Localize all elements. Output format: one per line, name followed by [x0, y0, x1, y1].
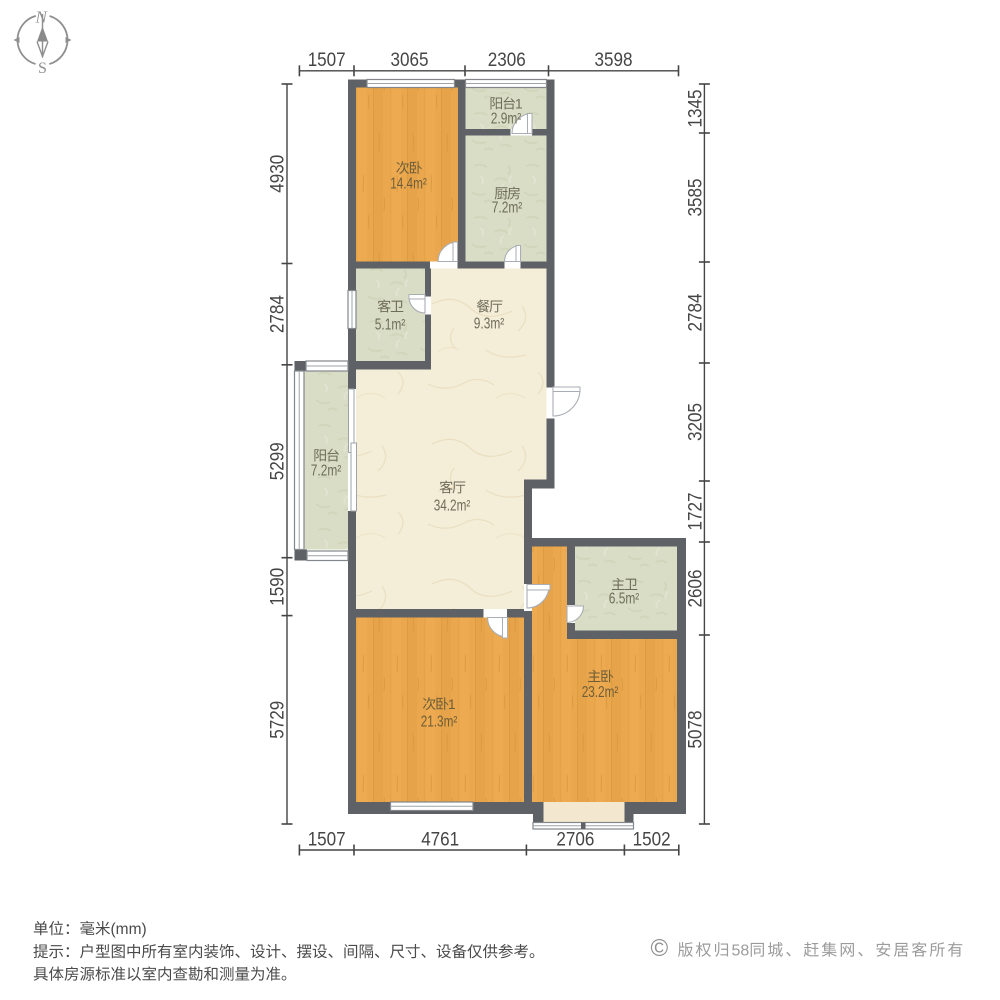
svg-text:1: 1 [515, 95, 523, 111]
svg-text:N: N [35, 8, 49, 27]
svg-text:1: 1 [448, 696, 456, 712]
svg-text:7.2m²: 7.2m² [492, 200, 523, 217]
svg-text:3205: 3205 [686, 403, 707, 441]
svg-text:2.9m²: 2.9m² [491, 111, 522, 128]
svg-text:1345: 1345 [686, 90, 707, 128]
svg-text:S: S [38, 60, 47, 77]
svg-text:4761: 4761 [421, 830, 459, 851]
svg-text:1590: 1590 [268, 568, 289, 606]
svg-text:58: 58 [732, 943, 750, 960]
svg-text:3585: 3585 [686, 179, 707, 217]
svg-text:21.3m²: 21.3m² [421, 714, 458, 731]
svg-text:23.2m²: 23.2m² [582, 684, 619, 701]
svg-text:7.2m²: 7.2m² [311, 463, 342, 480]
svg-text:5729: 5729 [268, 701, 289, 739]
svg-text:5.1m²: 5.1m² [375, 317, 406, 334]
svg-text:2784: 2784 [686, 293, 707, 331]
svg-text:14.4m²: 14.4m² [390, 176, 427, 193]
svg-text:1507: 1507 [308, 50, 346, 71]
svg-text:(mm): (mm) [111, 921, 147, 938]
svg-text:3598: 3598 [595, 50, 633, 71]
svg-text:2306: 2306 [488, 50, 526, 71]
svg-text:5299: 5299 [268, 442, 289, 480]
svg-text:9.3m²: 9.3m² [474, 316, 505, 333]
svg-text:3065: 3065 [391, 50, 429, 71]
svg-text:6.5m²: 6.5m² [609, 591, 640, 608]
svg-text:1507: 1507 [308, 830, 346, 851]
svg-text:1727: 1727 [686, 493, 707, 531]
svg-text:5078: 5078 [686, 711, 707, 749]
svg-text:2706: 2706 [556, 830, 594, 851]
svg-text:1502: 1502 [633, 830, 671, 851]
svg-text:2606: 2606 [686, 570, 707, 608]
svg-text:©: © [651, 935, 669, 962]
svg-text:2784: 2784 [268, 295, 289, 333]
svg-text:4930: 4930 [268, 155, 289, 193]
svg-text:34.2m²: 34.2m² [434, 498, 471, 515]
